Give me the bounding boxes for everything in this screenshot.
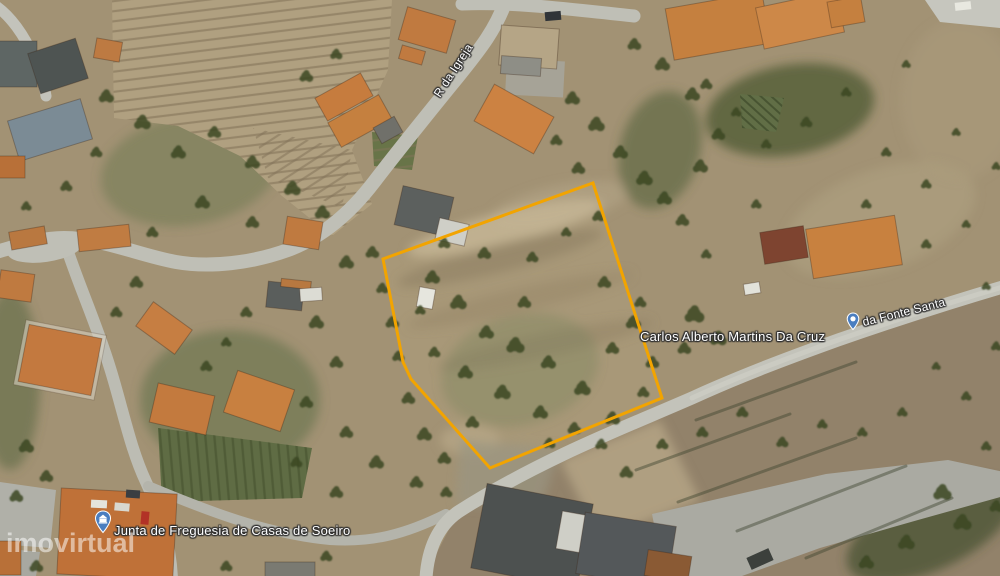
place-label-junta-de-freguesia: Junta de Freguesia de Casas de Soeiro [114,524,351,539]
imovirtual-watermark: imovirtual [6,530,135,557]
place-label-carlos-alberto-martins-da-cruz: Carlos Alberto Martins Da Cruz [640,330,825,345]
satellite-map-view[interactable]: R da Igreja da Fonte Santa Carlos Albert… [0,0,1000,576]
satellite-imagery [0,0,1000,576]
